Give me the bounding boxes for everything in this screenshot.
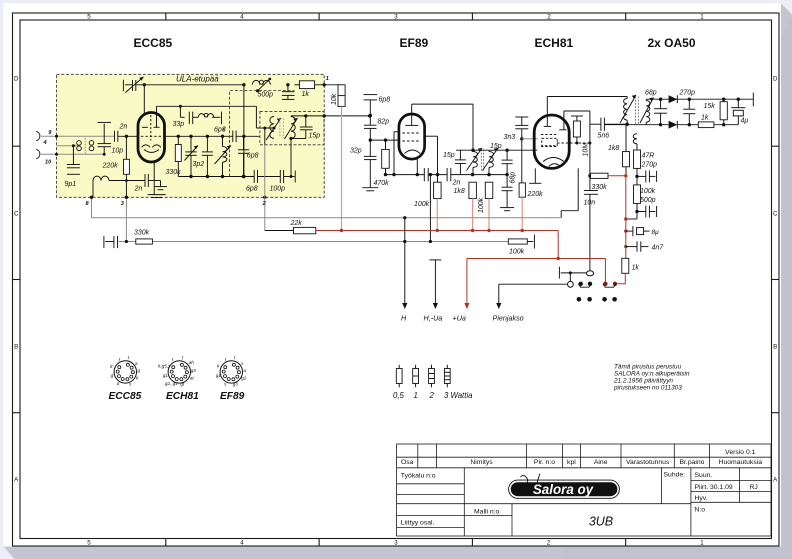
svg-text:a': a' bbox=[117, 381, 121, 386]
svg-text:Hyv.: Hyv. bbox=[695, 495, 708, 502]
svg-text:330k: 330k bbox=[592, 184, 608, 191]
svg-text:6p8: 6p8 bbox=[379, 97, 391, 104]
svg-text:330k: 330k bbox=[134, 230, 150, 237]
svg-text:3: 3 bbox=[394, 539, 398, 546]
svg-text:15k: 15k bbox=[704, 103, 716, 110]
svg-text:6p8: 6p8 bbox=[246, 185, 258, 192]
svg-text:100k: 100k bbox=[414, 201, 430, 208]
svg-text:H: H bbox=[401, 314, 407, 323]
svg-text:Nimitys: Nimitys bbox=[470, 459, 493, 466]
svg-text:10n: 10n bbox=[584, 200, 596, 207]
svg-text:Suun.: Suun. bbox=[695, 472, 713, 479]
svg-text:g1: g1 bbox=[216, 373, 222, 378]
svg-text:1: 1 bbox=[326, 76, 329, 82]
svg-text:ECC85: ECC85 bbox=[109, 391, 142, 402]
svg-text:3n3: 3n3 bbox=[504, 134, 516, 141]
svg-text:82p: 82p bbox=[378, 119, 390, 126]
svg-text:1k: 1k bbox=[632, 264, 640, 271]
svg-text:15p: 15p bbox=[309, 133, 321, 140]
svg-text:270p: 270p bbox=[679, 90, 696, 97]
svg-text:100k: 100k bbox=[640, 188, 656, 195]
svg-text:ULA-etupää: ULA-etupää bbox=[176, 75, 219, 84]
svg-text:2n: 2n bbox=[452, 180, 461, 187]
svg-text:kpl: kpl bbox=[567, 459, 576, 466]
svg-text:2n: 2n bbox=[134, 186, 143, 193]
svg-text:500p: 500p bbox=[640, 197, 656, 204]
svg-text:2: 2 bbox=[429, 391, 435, 400]
svg-text:1: 1 bbox=[700, 539, 704, 546]
svg-text:330k: 330k bbox=[166, 169, 182, 176]
svg-text:Suhde:: Suhde: bbox=[664, 472, 686, 479]
svg-text:1k: 1k bbox=[701, 114, 709, 121]
svg-text:Pir. n:o: Pir. n:o bbox=[534, 459, 555, 466]
svg-text:2n: 2n bbox=[119, 124, 128, 131]
svg-text:100k: 100k bbox=[509, 249, 525, 256]
svg-text:3p2: 3p2 bbox=[193, 161, 205, 168]
svg-text:Huomautuksia: Huomautuksia bbox=[719, 459, 763, 466]
svg-text:5n6: 5n6 bbox=[598, 132, 610, 139]
svg-text:C: C bbox=[773, 211, 778, 218]
svg-text:10p: 10p bbox=[112, 148, 124, 155]
svg-text:32p: 32p bbox=[350, 147, 362, 154]
svg-text:3UB: 3UB bbox=[589, 515, 613, 529]
svg-text:Osa: Osa bbox=[401, 459, 414, 466]
svg-text:SALORA oy:n alkuperäisin: SALORA oy:n alkuperäisin bbox=[614, 370, 690, 377]
svg-text:2x OA50: 2x OA50 bbox=[648, 36, 696, 50]
svg-text:Tämä pirustus perustuu: Tämä pirustus perustuu bbox=[614, 363, 682, 370]
svg-text:4: 4 bbox=[240, 539, 244, 546]
svg-text:10k: 10k bbox=[331, 93, 338, 105]
svg-text:+Ua: +Ua bbox=[453, 314, 466, 323]
svg-text:15p: 15p bbox=[490, 143, 502, 150]
svg-text:4μ: 4μ bbox=[741, 117, 749, 124]
svg-text:6p8: 6p8 bbox=[214, 126, 226, 133]
svg-text:RJ: RJ bbox=[750, 484, 758, 491]
svg-text:4: 4 bbox=[240, 14, 244, 21]
svg-text:100p: 100p bbox=[270, 185, 286, 192]
svg-text:ECH81: ECH81 bbox=[535, 36, 574, 50]
svg-text:8μ: 8μ bbox=[652, 229, 660, 236]
svg-text:D: D bbox=[773, 76, 778, 83]
svg-text:N:o: N:o bbox=[695, 507, 706, 514]
svg-text:3 Wattia: 3 Wattia bbox=[444, 391, 473, 400]
svg-text:B: B bbox=[773, 344, 777, 351]
svg-text:ah: ah bbox=[189, 360, 195, 365]
svg-text:68p: 68p bbox=[645, 90, 657, 97]
svg-text:B: B bbox=[14, 344, 18, 351]
svg-text:10: 10 bbox=[45, 159, 52, 165]
svg-text:33p: 33p bbox=[173, 121, 185, 128]
svg-text:Työkalu n:o: Työkalu n:o bbox=[401, 473, 436, 480]
svg-text:10M: 10M bbox=[583, 143, 590, 157]
svg-text:D: D bbox=[14, 76, 19, 83]
svg-text:1: 1 bbox=[414, 391, 418, 400]
svg-text:g3: g3 bbox=[233, 381, 239, 386]
svg-text:Br.paino: Br.paino bbox=[680, 459, 705, 466]
svg-text:g': g' bbox=[111, 373, 115, 378]
svg-text:Piirt. 30.1.09: Piirt. 30.1.09 bbox=[695, 484, 733, 491]
svg-text:Versio 0.1: Versio 0.1 bbox=[725, 449, 755, 456]
svg-text:Pienjakso: Pienjakso bbox=[493, 314, 524, 323]
svg-text:5: 5 bbox=[87, 539, 91, 546]
svg-text:500p: 500p bbox=[258, 92, 274, 99]
svg-text:470k: 470k bbox=[374, 180, 390, 187]
svg-text:ECH81: ECH81 bbox=[166, 391, 199, 402]
svg-text:3: 3 bbox=[394, 14, 398, 21]
svg-text:5: 5 bbox=[87, 14, 91, 21]
svg-text:6p8: 6p8 bbox=[247, 153, 259, 160]
svg-text:Aine: Aine bbox=[594, 459, 608, 466]
svg-text:a: a bbox=[135, 361, 138, 366]
svg-text:Liittyy osal.: Liittyy osal. bbox=[401, 520, 435, 527]
svg-text:0,5: 0,5 bbox=[393, 391, 405, 400]
svg-text:270p: 270p bbox=[641, 162, 658, 169]
svg-text:k': k' bbox=[110, 364, 113, 369]
svg-text:47R: 47R bbox=[642, 152, 655, 159]
svg-text:220k: 220k bbox=[527, 191, 544, 198]
svg-text:g1: g1 bbox=[163, 373, 169, 378]
svg-text:15p: 15p bbox=[443, 152, 455, 159]
svg-text:g: g bbox=[138, 368, 141, 373]
svg-text:2: 2 bbox=[547, 539, 551, 546]
svg-text:Varastotunnus: Varastotunnus bbox=[626, 459, 670, 466]
svg-text:68p: 68p bbox=[510, 172, 517, 184]
svg-text:g2, g4: g2, g4 bbox=[165, 381, 178, 386]
svg-text:a: a bbox=[244, 368, 247, 373]
svg-text:1: 1 bbox=[700, 14, 704, 21]
svg-text:g3: g3 bbox=[191, 368, 197, 373]
svg-text:g2: g2 bbox=[241, 375, 247, 380]
svg-text:pirustukseen no 011303: pirustukseen no 011303 bbox=[613, 385, 682, 392]
svg-text:H,-Ua: H,-Ua bbox=[424, 314, 443, 323]
svg-text:2: 2 bbox=[547, 14, 551, 21]
svg-text:EF89: EF89 bbox=[400, 36, 429, 50]
svg-text:k,g5,s: k,g5,s bbox=[158, 363, 171, 368]
svg-text:1k: 1k bbox=[302, 91, 310, 98]
svg-text:1k8: 1k8 bbox=[454, 188, 465, 195]
svg-text:100k: 100k bbox=[478, 197, 485, 213]
svg-text:Salora oy: Salora oy bbox=[533, 482, 594, 497]
svg-text:EF89: EF89 bbox=[220, 391, 245, 402]
svg-text:21.2.1956 päivättyyn: 21.2.1956 päivättyyn bbox=[613, 378, 673, 385]
svg-text:4n7: 4n7 bbox=[652, 245, 665, 252]
svg-text:9p1: 9p1 bbox=[65, 181, 77, 188]
svg-text:1k8: 1k8 bbox=[608, 145, 619, 152]
svg-text:Malli n:o: Malli n:o bbox=[474, 508, 500, 515]
svg-text:22k: 22k bbox=[290, 220, 303, 227]
svg-text:ECC85: ECC85 bbox=[134, 36, 173, 50]
svg-text:220k: 220k bbox=[102, 163, 119, 170]
svg-text:C: C bbox=[14, 211, 19, 218]
